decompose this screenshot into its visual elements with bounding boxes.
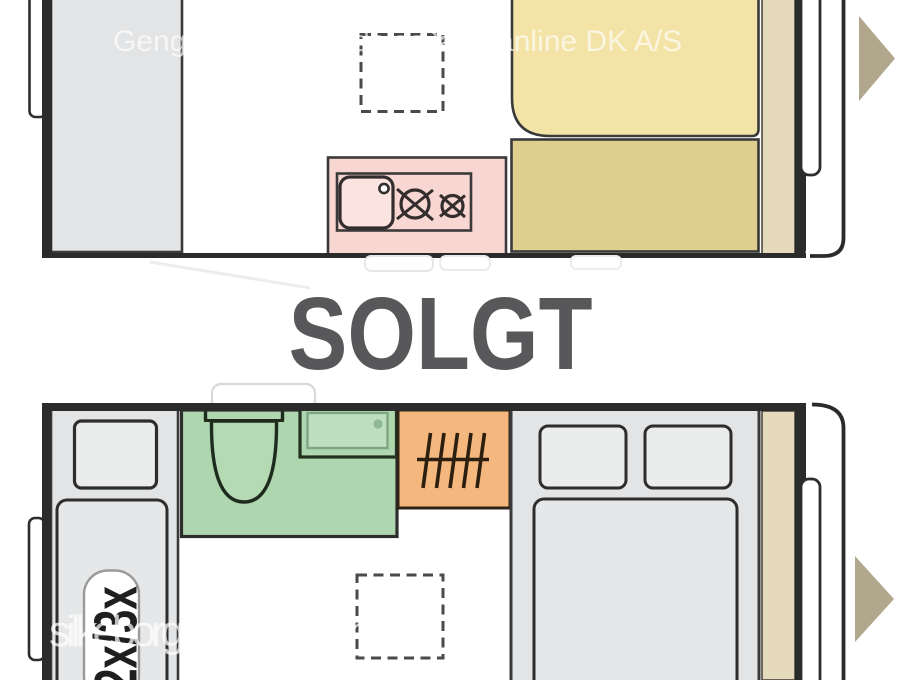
svg-text:silkeborgcampingcenter: silkeborgcampingcenter (49, 607, 408, 656)
svg-text:Gengivet med tilladelse: Gengivet med tilladelse (113, 25, 425, 58)
svg-text:SOLGT: SOLGT (289, 276, 593, 391)
svg-text:Caravanline DK A/S: Caravanline DK A/S (417, 25, 682, 58)
